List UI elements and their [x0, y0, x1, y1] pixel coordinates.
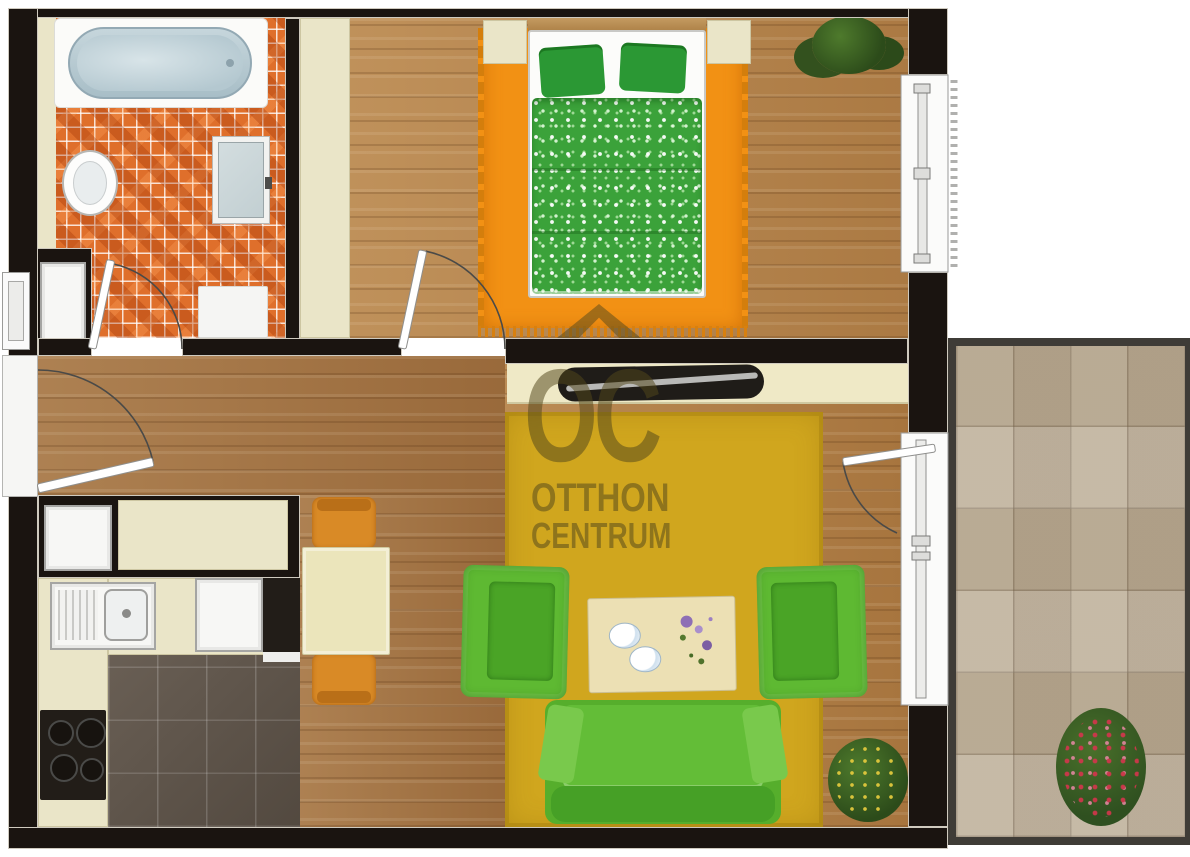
balcony-door	[842, 433, 948, 705]
watermark-line2: CENTRUM	[531, 518, 671, 554]
bedroom-window	[901, 75, 954, 272]
watermark-logo: OC	[524, 350, 658, 482]
floor-plan: OC OTTHON CENTRUM	[0, 0, 1190, 857]
bathroom-door	[88, 260, 182, 350]
bedroom-door	[398, 250, 505, 349]
watermark-line1: OTTHON	[531, 478, 669, 518]
entrance-door	[37, 370, 154, 493]
